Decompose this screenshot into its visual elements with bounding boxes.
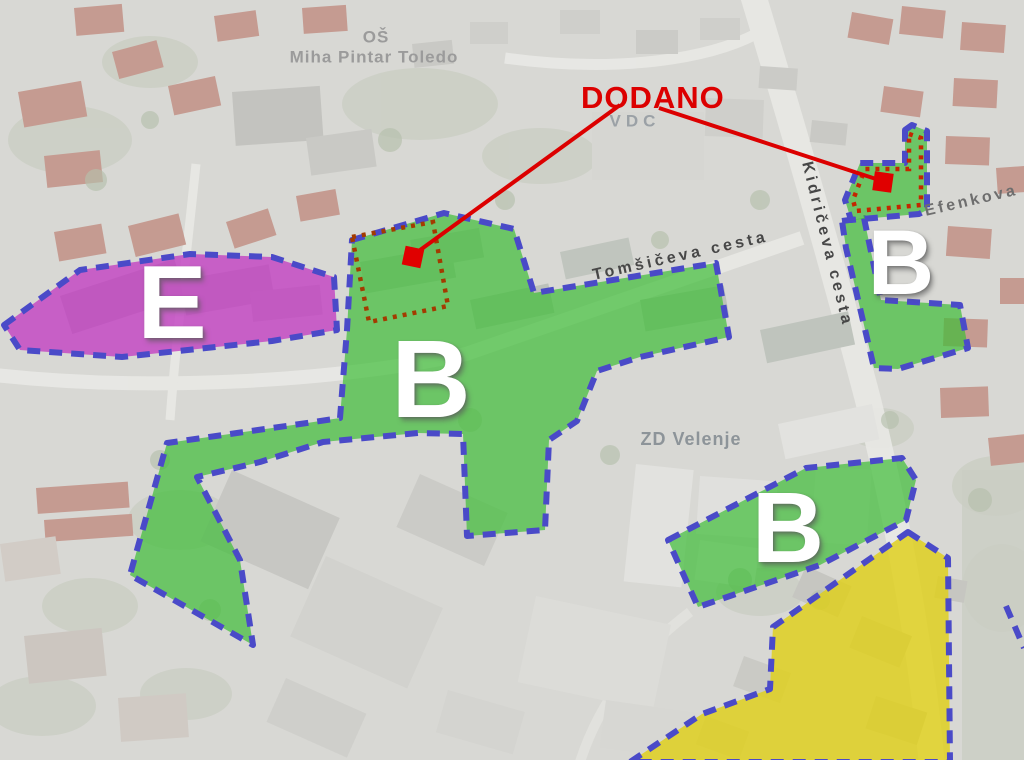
dodano-callout-line-1 bbox=[416, 105, 620, 253]
zones-layer bbox=[0, 0, 1024, 760]
zone-e bbox=[4, 254, 337, 357]
edge-zone-corner bbox=[1006, 606, 1024, 648]
dodano-marker-2 bbox=[872, 171, 893, 192]
zone-b-east bbox=[842, 218, 968, 369]
dodano-callout-line-2 bbox=[659, 108, 876, 179]
dodano-marker-1 bbox=[402, 246, 425, 269]
zoning-map: DODANO Tomšičeva cestaKidričeva cestaEfe… bbox=[0, 0, 1024, 760]
